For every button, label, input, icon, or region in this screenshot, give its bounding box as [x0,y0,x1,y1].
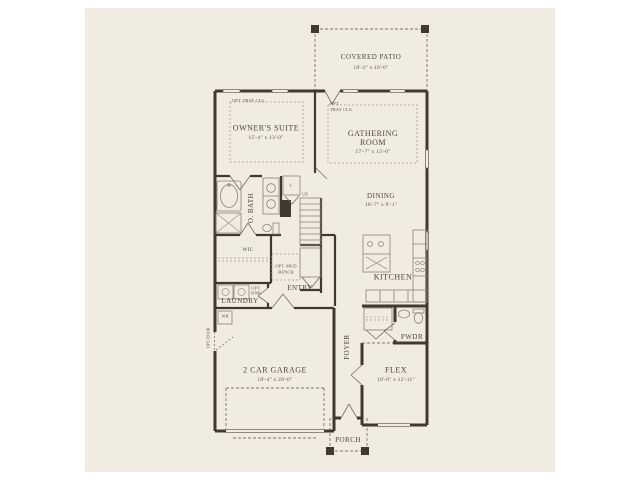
room-label-powder: PWDR [401,333,423,341]
room-label-kitchen: KITCHEN [374,272,413,281]
room-label-laundry: LAUNDRY [221,297,258,305]
linen-closet-label: L [290,182,293,187]
floor-plan-page: COVERED PATIO 18'-3" x 10'-0" OPT. TRAY … [0,0,640,480]
room-dims-dining: 16'-7" x 9'-1" [365,202,397,208]
room-dims-covered-patio: 18'-3" x 10'-0" [353,65,388,71]
shower [216,213,241,233]
plumbing-wall-block [280,200,291,217]
opt-tray-clg-note-gathering-1: OPT. [330,101,339,106]
opt-sink-note-2: SINK [251,290,262,295]
room-dims-garage: 18'-4" x 20'-0" [257,377,292,383]
foyer-closet [364,308,392,330]
range-burners [416,261,425,272]
room-label-flex: FLEX [385,365,407,374]
room-label-entry: ENTRY [287,284,312,292]
opt-door-note: OPT. DOOR [207,328,212,349]
opt-tray-clg-note-owners: OPT. TRAY CLG [232,98,265,103]
room-label-dining: DINING [367,192,395,200]
bath-toilet [263,223,279,234]
bathtub [217,181,241,211]
room-label-garage: 2 CAR GARAGE [243,365,307,374]
room-label-foyer: FOYER [343,334,351,359]
room-label-covered-patio: COVERED PATIO [341,53,402,61]
double-vanity [263,178,279,214]
room-label-owners-bath: O. BATH [247,193,255,223]
powder-fixtures [399,309,425,323]
opt-tray-clg-note-gathering-2: TRAY CLG [330,107,352,112]
room-dims-gathering-room: 17'-7" x 13'-0" [355,149,390,155]
opt-mud-bench-note-1: OPT. MUD [275,263,296,268]
room-label-porch: PORCH [335,436,361,444]
room-label-gathering-room: GATHERING ROOM [341,129,405,147]
room-dims-flex: 10'-0" x 12'-11" [377,377,415,383]
kitchen-island [363,235,390,272]
water-heater-label: WH [222,315,229,320]
room-dims-owners-suite: 15'-4" x 13'-0" [248,135,283,141]
room-label-wic: WIC [243,248,254,254]
stairs-up-label: UP [302,191,308,196]
stairs [300,198,321,277]
floor-plan-drawing [0,0,640,480]
opt-mud-bench-note-2: BENCH [278,269,293,274]
kitchen-counters [366,230,427,302]
room-label-owners-suite: OWNER'S SUITE [233,123,299,132]
